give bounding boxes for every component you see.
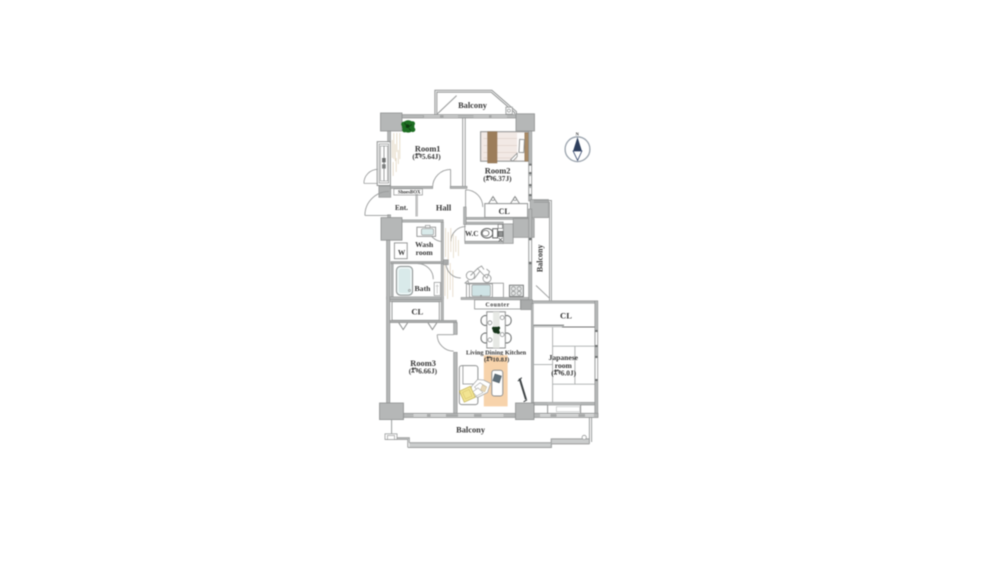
svg-text:10.8J): 10.8J): [493, 357, 510, 364]
svg-text:Balcony: Balcony: [458, 101, 488, 110]
svg-text:W: W: [398, 248, 406, 257]
svg-text:W.C: W.C: [465, 230, 479, 238]
svg-text:(: (: [484, 357, 486, 364]
svg-text:Balcony: Balcony: [456, 425, 486, 434]
svg-text:5.64J): 5.64J): [422, 152, 441, 161]
svg-text:Hall: Hall: [436, 203, 452, 212]
svg-text:CL: CL: [499, 207, 511, 216]
svg-text:room: room: [416, 248, 434, 257]
svg-text:CL: CL: [411, 307, 423, 317]
svg-text:Bath: Bath: [414, 284, 431, 293]
svg-text:6.0J): 6.0J): [561, 368, 577, 377]
svg-text:6.66J): 6.66J): [418, 366, 437, 375]
svg-text:Ent.: Ent.: [395, 204, 408, 212]
svg-text:CL: CL: [560, 310, 572, 320]
svg-text:Balcony: Balcony: [536, 245, 545, 273]
svg-text:6.37J): 6.37J): [493, 174, 512, 183]
svg-text:Counter: Counter: [486, 303, 510, 309]
